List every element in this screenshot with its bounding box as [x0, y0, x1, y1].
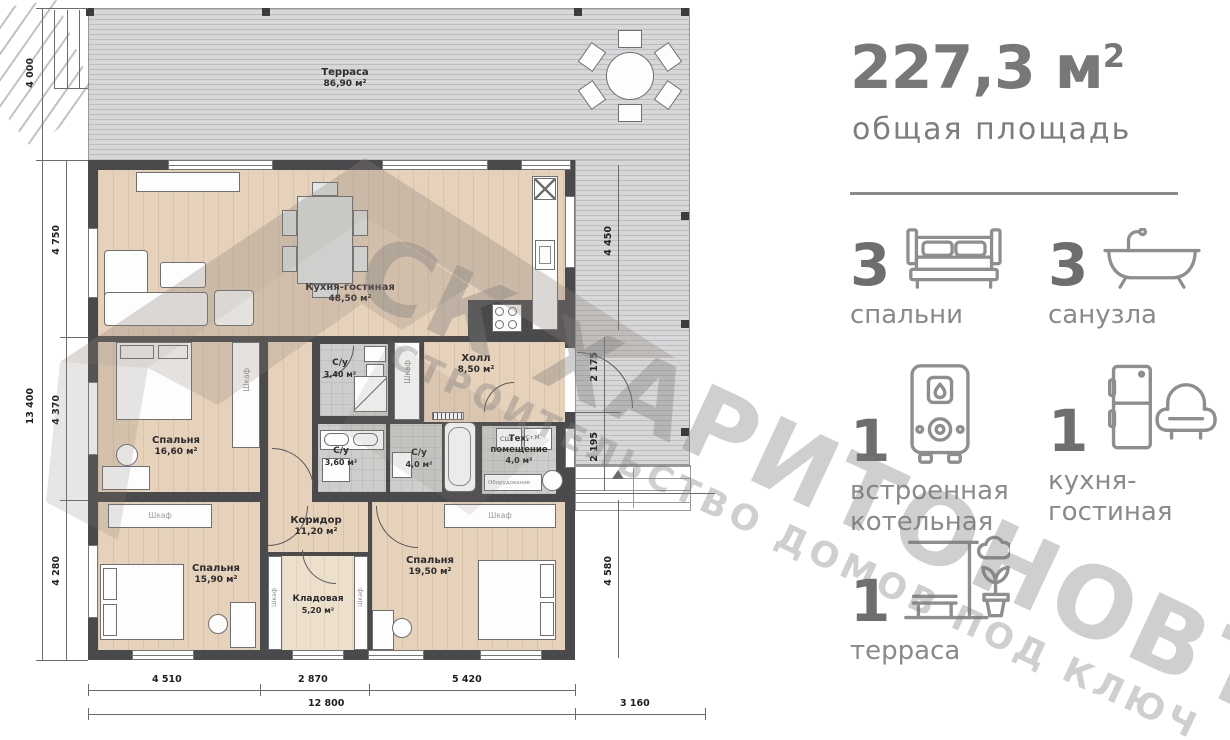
equipment-label: Оборудование: [488, 480, 530, 486]
room-label-bedroom1: Спальня 16,60 м²: [152, 434, 200, 459]
room-label-bath3: С/у 4,0 м²: [406, 448, 433, 470]
dim-ext: [36, 160, 88, 161]
pillow: [103, 604, 117, 636]
room-name2: помещение: [490, 445, 547, 456]
radiator: [432, 412, 464, 420]
terrace-chair: [618, 30, 642, 48]
pillow: [540, 602, 554, 636]
sofa: [104, 292, 208, 326]
chair: [312, 182, 338, 196]
room-area: 48,50 м²: [305, 294, 395, 306]
dim-tick: [369, 684, 370, 696]
pillow: [158, 345, 188, 359]
divider: [850, 192, 1178, 195]
room-name: Спальня: [152, 434, 200, 447]
window: [382, 160, 488, 170]
stat-terrace: 1 терраса: [850, 532, 1046, 667]
sink-basin: [539, 246, 551, 264]
stat-label: встроенная: [850, 476, 1046, 507]
burner: [508, 320, 517, 329]
dim-label: 4 750: [52, 225, 62, 255]
room-area: 3,60 м²: [325, 458, 358, 468]
window: [565, 196, 575, 268]
room-name: С/у: [324, 358, 357, 370]
window: [521, 160, 571, 170]
room-area: 4,0 м²: [490, 456, 547, 466]
dim-line: [42, 8, 43, 660]
total-area-sup: 2: [1103, 37, 1124, 75]
terrace-deck-right: [575, 160, 690, 465]
window: [368, 650, 424, 660]
room-label-bedroom3: Спальня 19,50 м²: [406, 554, 454, 579]
boiler-unit: [542, 470, 563, 491]
room-name: Кухня-гостиная: [305, 281, 395, 294]
desk-chair: [392, 618, 412, 638]
room-label-pantry: Кладовая 5,20 м²: [292, 594, 343, 616]
terrace-post: [681, 212, 689, 220]
dim-label: 4 510: [152, 674, 182, 685]
steps-divider: [633, 468, 634, 508]
dim-line: [88, 714, 705, 715]
desk: [372, 610, 394, 650]
boiler-icon: [902, 362, 978, 466]
dining-table: [297, 196, 353, 284]
dim-label: 4 000: [26, 58, 36, 88]
closet-label: Шкаф: [271, 588, 278, 607]
dim-label: 5 420: [452, 674, 482, 685]
burner: [508, 307, 517, 316]
room-label-terrace: Терраса 86,90 м²: [321, 66, 368, 91]
room-name: С/у: [325, 446, 358, 458]
dim-label: 13 400: [26, 388, 36, 424]
room-area: 15,90 м²: [192, 575, 240, 587]
dim-label: 3 160: [620, 698, 650, 709]
burner: [495, 307, 504, 316]
dim-ext: [79, 10, 80, 88]
stat-label: спальни: [850, 300, 1046, 331]
total-area-unit: м: [1055, 33, 1103, 103]
room-area: 86,90 м²: [321, 79, 368, 91]
pillow: [103, 568, 117, 600]
stat-count: 1: [1048, 407, 1088, 456]
room-label-bath1: С/у 3,40 м²: [324, 358, 357, 380]
terrace-icon: [902, 532, 1010, 626]
dim-ext: [54, 88, 88, 89]
room-label-bedroom2: Спальня 15,90 м²: [192, 562, 240, 587]
window: [88, 382, 98, 455]
stat-count: 1: [850, 417, 890, 466]
window: [292, 650, 344, 660]
window: [168, 160, 273, 170]
room-label-bath2: С/у 3,60 м²: [325, 446, 358, 468]
room-name: Спальня: [406, 554, 454, 567]
stat-label: терраса: [850, 636, 1046, 667]
stat-count: 3: [1048, 241, 1088, 290]
dim-tick: [575, 708, 576, 720]
room-name: Кладовая: [292, 594, 343, 606]
dim-label: 2 195: [590, 432, 600, 462]
terrace-post: [262, 8, 270, 16]
dim-ext: [60, 500, 88, 501]
closet-bedroom1: [232, 342, 260, 448]
terrace-deck-top: [88, 8, 690, 161]
logo-hatch-watermark: [0, 0, 95, 150]
room-name: Тех.: [490, 434, 547, 445]
armchair: [214, 290, 254, 326]
closet-label: Шкаф: [488, 511, 512, 520]
dim-tick: [88, 708, 89, 720]
bed-icon: [902, 228, 1006, 290]
dim-label: 4 450: [604, 226, 614, 256]
floorplan-page: Терраса 86,90 м²: [0, 0, 1230, 740]
room-label-corridor: Коридор 11,20 м²: [290, 514, 341, 539]
dim-line: [88, 690, 575, 691]
terrace-post: [574, 8, 582, 16]
dim-ext: [36, 8, 88, 9]
coffee-table: [160, 262, 206, 288]
chair: [282, 210, 297, 236]
vent-shaft-icon: [534, 178, 556, 200]
room-name: С/у: [406, 448, 433, 460]
desk-chair: [208, 614, 228, 634]
room-name: Холл: [458, 352, 495, 365]
window: [88, 228, 98, 298]
dim-label: 12 800: [308, 698, 344, 709]
dim-ext: [60, 337, 88, 338]
chair: [353, 210, 368, 236]
dim-tick: [88, 684, 89, 696]
terrace-table: [606, 52, 654, 100]
sink-basin: [353, 433, 378, 446]
stat-label2: гостиная: [1048, 497, 1230, 528]
chair: [282, 246, 297, 272]
dim-tick: [705, 708, 706, 720]
sink-basin: [324, 433, 349, 446]
total-area-caption: общая площадь: [852, 112, 1131, 147]
total-area-value: 227,3: [850, 33, 1035, 103]
bathtub-icon: [1100, 228, 1204, 290]
closet-label: Шкаф: [242, 368, 251, 392]
stat-bedrooms: 3 спальни: [850, 228, 1046, 331]
entry-door-opening: [565, 348, 575, 412]
window: [480, 650, 542, 660]
room-area: 16,60 м²: [152, 447, 200, 459]
dim-label: 4 370: [52, 395, 62, 425]
dim-ext: [67, 10, 68, 88]
stat-label: кухня-: [1048, 466, 1230, 497]
closet-label: Шкаф: [148, 511, 172, 520]
chair: [353, 246, 368, 272]
room-name: Спальня: [192, 562, 240, 575]
terrace-chair: [618, 104, 642, 122]
window: [132, 650, 194, 660]
dim-label: 2 870: [298, 674, 328, 685]
stat-boiler: 1 встроенная котельная: [850, 362, 1046, 538]
room-area: 19,50 м²: [406, 567, 454, 579]
window: [88, 545, 98, 618]
pillow: [540, 564, 554, 598]
desk: [230, 602, 256, 648]
dim-ext: [54, 10, 55, 88]
room-area: 3,40 м²: [324, 370, 357, 380]
dim-ext: [575, 412, 621, 413]
desk: [102, 466, 150, 490]
sideboard: [136, 172, 240, 192]
kitchen-living-icon: [1100, 362, 1218, 456]
dim-line: [618, 165, 619, 330]
terrace-post: [681, 8, 689, 16]
dim-line: [66, 160, 67, 660]
room-label-hall: Холл 8,50 м²: [458, 352, 495, 377]
closet-label: Шкаф: [357, 588, 364, 607]
stat-label: санузла: [1048, 300, 1230, 331]
terrace-post: [681, 428, 689, 436]
stat-count: 1: [850, 577, 890, 626]
bath-cabinet: [364, 346, 386, 362]
total-area: 227,3 м2: [850, 38, 1124, 98]
room-label-kitchen-living: Кухня-гостиная 48,50 м²: [305, 281, 395, 306]
room-label-tech: Тех. помещение 4,0 м²: [490, 434, 547, 466]
entry-arrow-icon: [612, 470, 624, 479]
room-name: Коридор: [290, 514, 341, 527]
dim-tick: [260, 684, 261, 696]
dim-tick: [575, 684, 576, 696]
room-name: Терраса: [321, 66, 368, 79]
dim-ext: [36, 660, 88, 661]
dim-line: [618, 500, 619, 658]
burner: [495, 320, 504, 329]
shower: [354, 376, 387, 412]
window: [565, 428, 575, 468]
dim-label: 4 280: [52, 556, 62, 586]
pillow: [120, 345, 154, 359]
room-area: 4,0 м²: [406, 460, 433, 470]
room-area: 8,50 м²: [458, 365, 495, 377]
terrace-post: [86, 8, 94, 16]
room-area: 5,20 м²: [292, 606, 343, 616]
closet-label: Шкаф: [403, 360, 412, 384]
dim-ext: [575, 493, 715, 494]
room-area: 11,20 м²: [290, 527, 341, 539]
stat-count: 3: [850, 241, 890, 290]
terrace-post: [681, 320, 689, 328]
bathtub-basin: [448, 427, 471, 486]
stat-kitchen-living: 1 кухня- гостиная: [1048, 362, 1230, 528]
equipment-strip: Оборудование: [484, 474, 542, 491]
desk-chair: [116, 444, 138, 466]
stat-bathrooms: 3 санузла: [1048, 228, 1230, 331]
dim-label: 4 580: [604, 556, 614, 586]
